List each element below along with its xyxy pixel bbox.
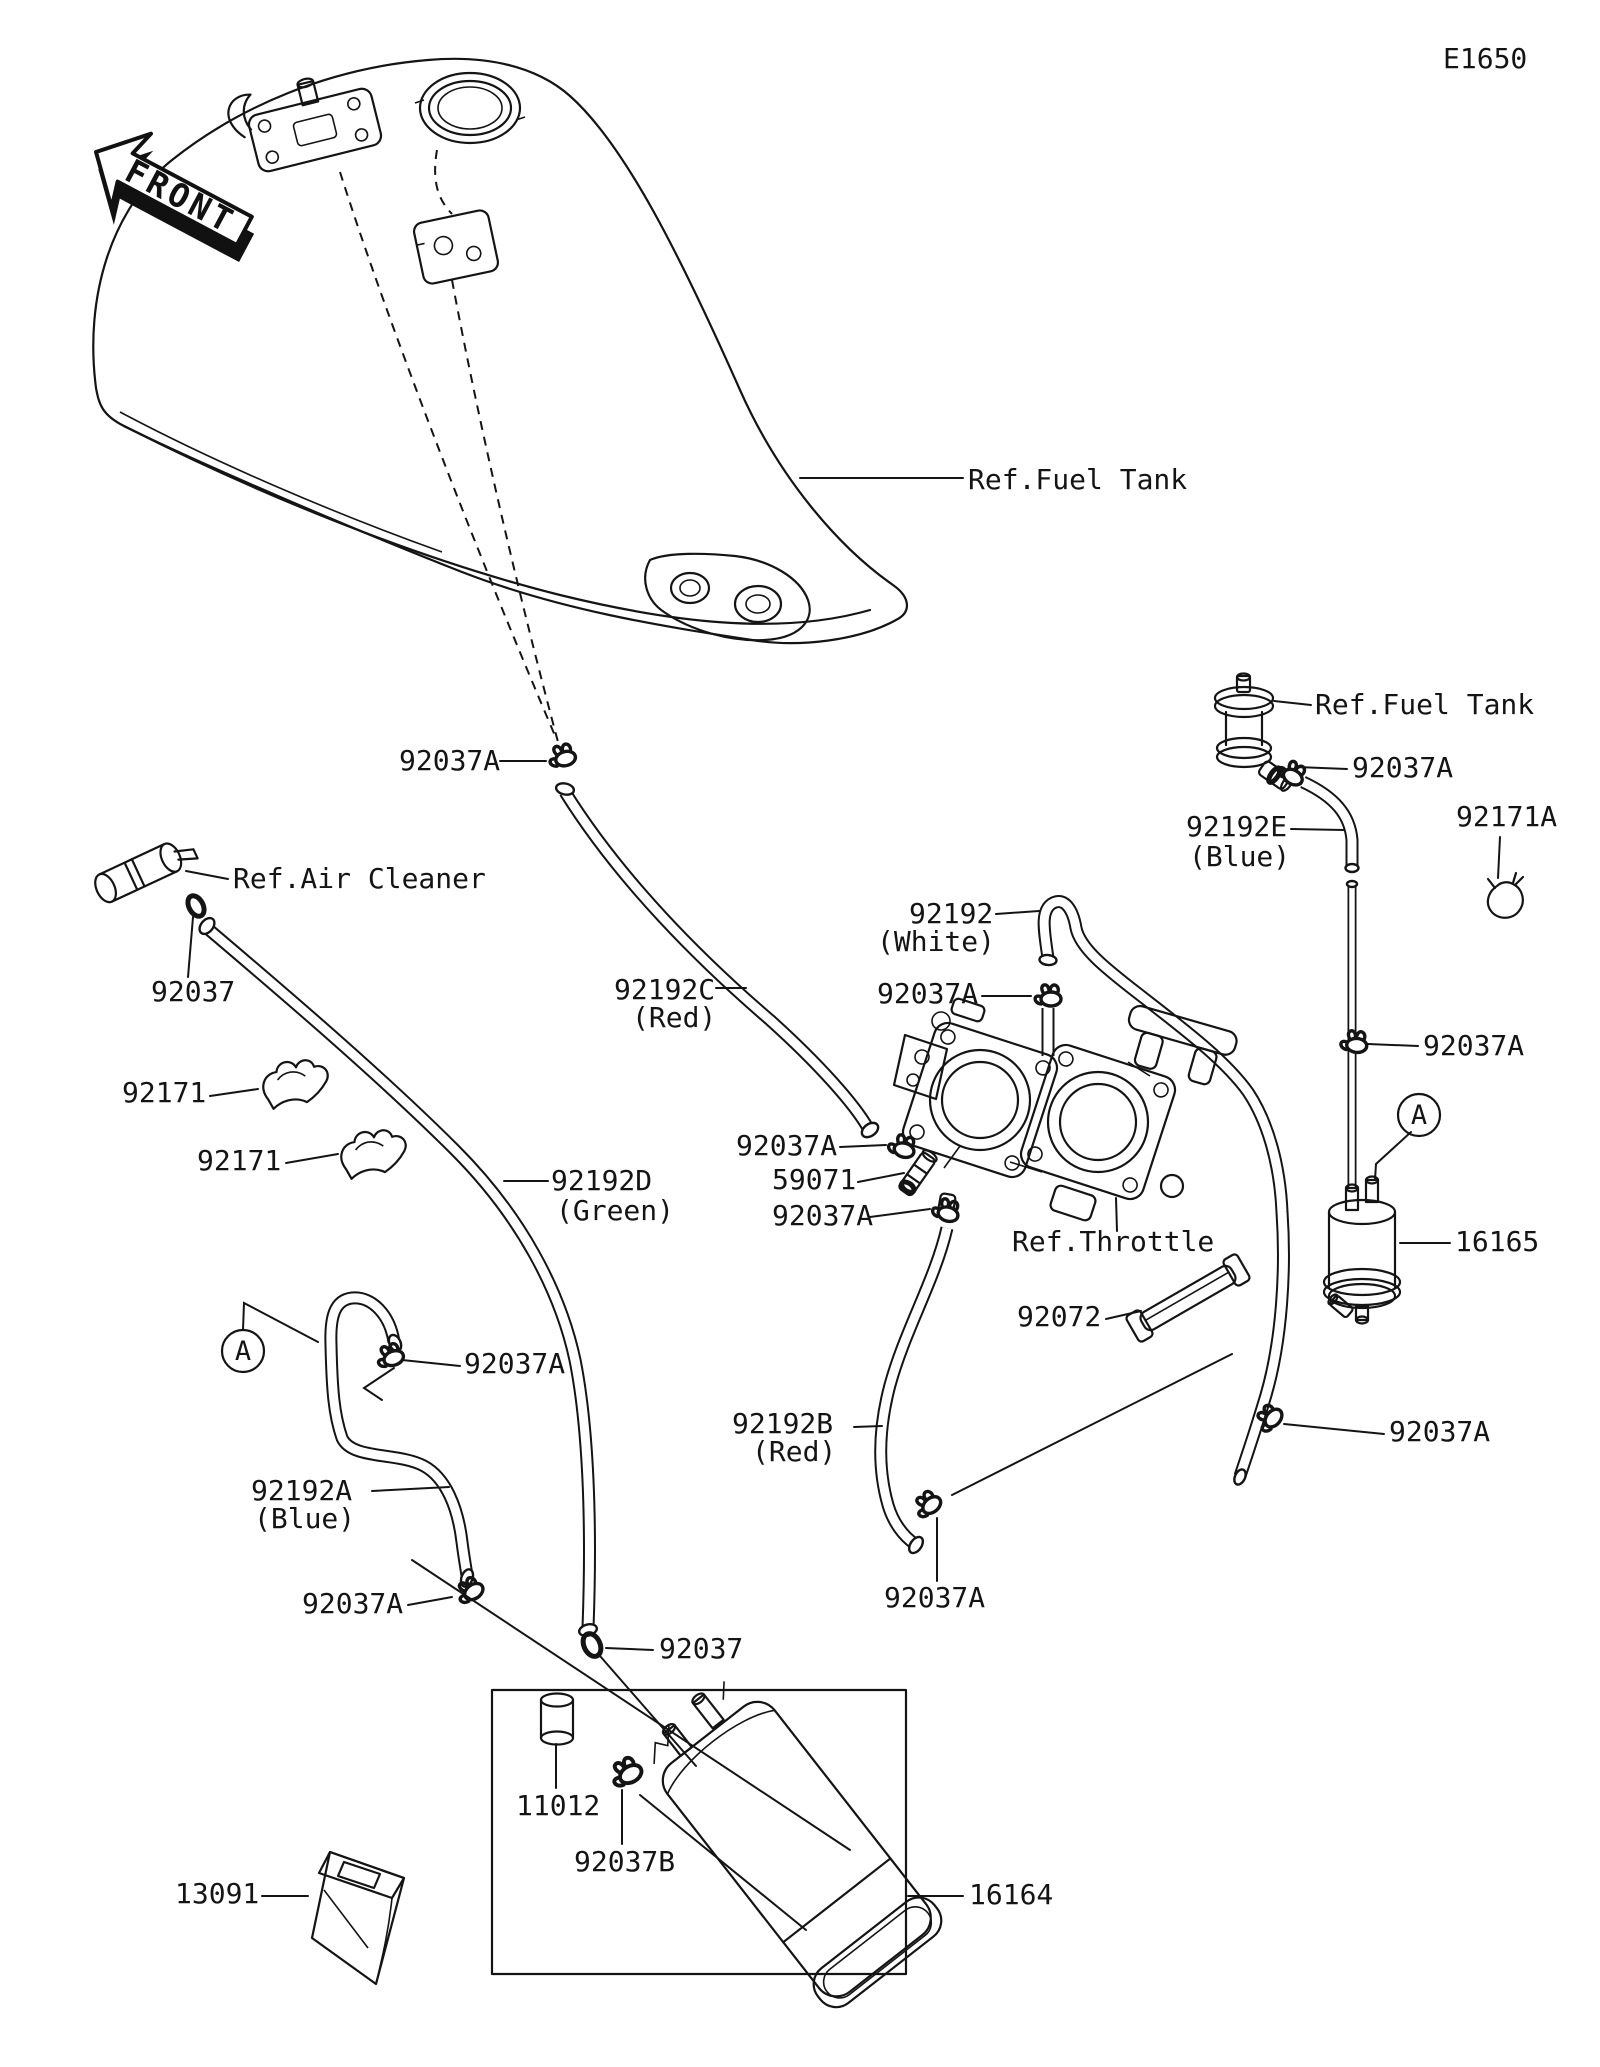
canister-16164 (626, 1659, 949, 2015)
label-ref-fuel-tank-cock: Ref.Fuel Tank (1315, 688, 1534, 721)
clamp-joint-top (887, 1132, 917, 1159)
filler-plate (224, 64, 383, 177)
label-92037a-cock: 92037A (1352, 751, 1453, 784)
hose-92192-white (1039, 902, 1283, 1487)
label-92171a: 92171A (1456, 800, 1557, 833)
a-marker-left: A (222, 1330, 264, 1372)
hose-92192e-blue (1303, 782, 1359, 1188)
label-92192c-color: (Red) (632, 1001, 716, 1034)
a-marker-left-letter: A (235, 1336, 251, 1367)
hose-92192a-blue (331, 1298, 475, 1588)
clamp-92037-part (185, 893, 208, 919)
label-11012: 11012 (516, 1789, 600, 1822)
a-marker-right-letter: A (1411, 1100, 1427, 1131)
clamp-white-hose (1035, 985, 1061, 1006)
label-ref-air-cleaner: Ref.Air Cleaner (233, 862, 486, 895)
front-direction-arrow: FRONT (70, 115, 273, 285)
label-92037-air: 92037 (151, 975, 235, 1008)
label-92192d: 92192D (551, 1164, 652, 1197)
label-92192d-color: (Green) (556, 1194, 674, 1227)
part-labels: E1650 Ref.Fuel Tank 92037A Ref.Air Clean… (122, 42, 1557, 1911)
label-92037-canister: 92037 (659, 1632, 743, 1665)
clamp-b-end (910, 1488, 943, 1521)
clamp-92037-canister-part (580, 1631, 605, 1660)
label-92037a-ahose: 92037A (464, 1347, 565, 1380)
label-13091: 13091 (175, 1877, 259, 1910)
wire-clip-92171a (1488, 873, 1523, 918)
label-16164: 16164 (969, 1878, 1053, 1911)
fuel-tank-drawing (93, 59, 907, 742)
label-92037a-white-end: 92037A (1389, 1415, 1490, 1448)
tank-bracket (412, 209, 499, 285)
label-92037b: 92037B (574, 1845, 675, 1878)
holder-13091-part (312, 1852, 404, 1984)
diagram-code: E1650 (1443, 42, 1527, 75)
label-92037a-joint-bottom: 92037A (772, 1199, 873, 1232)
label-59071: 59071 (772, 1163, 856, 1196)
label-92192e: 92192E (1186, 810, 1287, 843)
label-92192e-color: (Blue) (1189, 840, 1290, 873)
clamp-tank (547, 742, 577, 769)
fuel-evaporative-system-diagram: FRONT (0, 0, 1600, 2067)
label-ref-throttle: Ref.Throttle (1012, 1225, 1214, 1258)
label-92037a-joint-top: 92037A (736, 1129, 837, 1162)
clamp-joint-bottom (931, 1196, 961, 1223)
cap-11012-part (541, 1694, 573, 1745)
label-ref-fuel-tank-main: Ref.Fuel Tank (968, 463, 1187, 496)
label-92037a-tank: 92037A (399, 744, 500, 777)
label-92037a-b-end: 92037A (884, 1581, 985, 1614)
band-92072-part (1125, 1253, 1251, 1343)
clamp-pipe (1340, 1030, 1368, 1053)
saddle-clip-92171-lower (338, 1127, 409, 1180)
fuel-cap (415, 73, 525, 143)
label-16165: 16165 (1455, 1225, 1539, 1258)
label-92192b-color: (Red) (752, 1435, 836, 1468)
label-92037a-pipe: 92037A (1423, 1029, 1524, 1062)
a-marker-right: A (1398, 1094, 1440, 1136)
label-92192-color: (White) (877, 925, 995, 958)
label-92037a-blue-end: 92037A (302, 1587, 403, 1620)
hose-92192c-red (555, 782, 881, 1140)
parts-diagram-page: FRONT (0, 0, 1600, 2067)
fuel-filter-16165 (1324, 1177, 1400, 1324)
label-92171-upper: 92171 (122, 1076, 206, 1109)
label-92037a-white: 92037A (877, 977, 978, 1010)
label-92192a-color: (Blue) (254, 1502, 355, 1535)
clamp-92037b-part (607, 1754, 645, 1790)
label-92171-lower: 92171 (197, 1144, 281, 1177)
label-92072: 92072 (1017, 1300, 1101, 1333)
air-cleaner-fitting (91, 834, 199, 906)
saddle-clip-92171-upper (260, 1057, 331, 1110)
